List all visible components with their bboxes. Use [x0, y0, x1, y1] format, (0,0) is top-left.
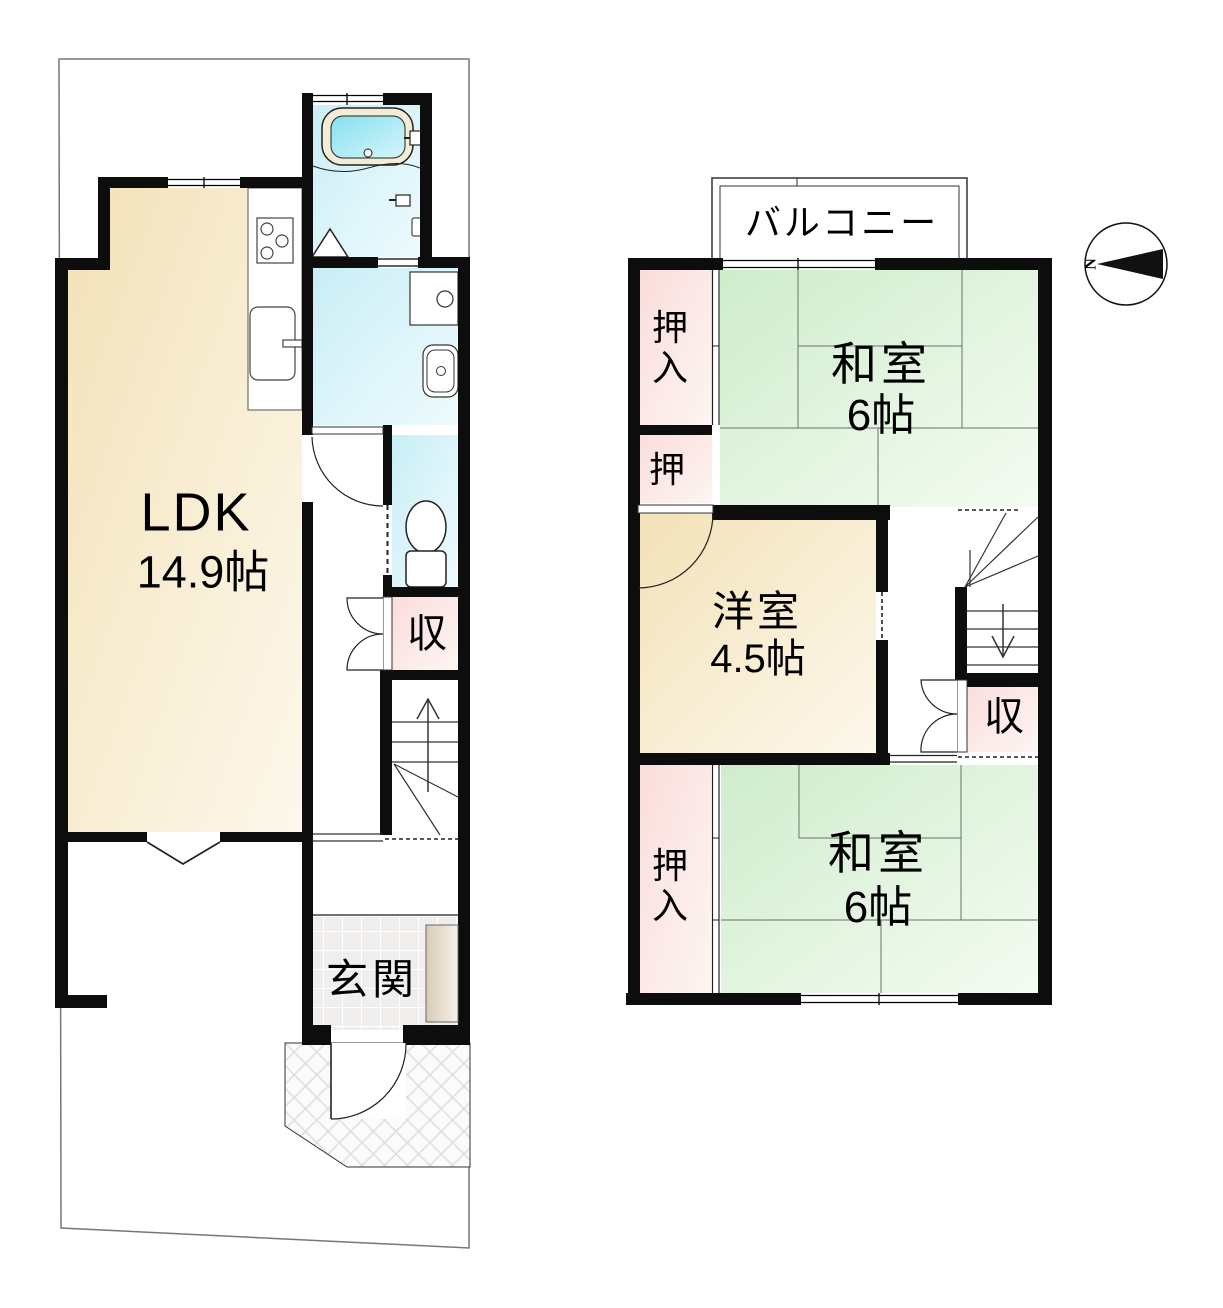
- closet-south-char2: 入: [652, 887, 688, 925]
- closet-north-char1: 押: [652, 309, 688, 347]
- ldk-door-icon: [147, 842, 220, 864]
- washitsu-north-label: 和室: [831, 340, 931, 388]
- entrance-door-icon: [331, 1043, 406, 1119]
- closet-north-char2: 入: [652, 349, 688, 387]
- storage1f-label: 収: [407, 613, 447, 655]
- ldk-label: LDK: [140, 485, 251, 542]
- washing-machine-icon: [410, 272, 458, 325]
- toilet-icon: [406, 501, 446, 587]
- wash-basin-icon: [423, 345, 458, 397]
- stairs-1f: [392, 699, 458, 835]
- washitsu-south-size-label: 6帖: [844, 885, 912, 931]
- entrance-label: 玄関: [326, 958, 418, 1002]
- bathtub-icon: [322, 108, 422, 165]
- closet-south-char1: 押: [652, 847, 688, 885]
- floorplan-drawing: [0, 0, 1223, 1308]
- washroom-door-icon: [312, 427, 383, 506]
- closet-north-label: 押 入: [652, 309, 688, 387]
- closet-south-label: 押 入: [652, 847, 688, 925]
- compass-north-label: N: [1084, 258, 1101, 270]
- floor2-plan: [626, 178, 1052, 1005]
- ldk-size-label: 14.9帖: [137, 548, 270, 595]
- youshitsu-label: 洋室: [712, 590, 802, 634]
- closet-mid-label: 押: [649, 451, 685, 489]
- storage2f-doors-icon: [921, 680, 967, 752]
- kitchen-sink-icon: [250, 307, 302, 380]
- washitsu-south-floor: [721, 765, 1038, 993]
- floorplan-canvas: LDK 14.9帖 収 玄関 バルコニー 和室 6帖 押 入 押 洋室 4.5帖…: [0, 0, 1223, 1308]
- stove-icon: [257, 218, 293, 263]
- balcony-label: バルコニー: [745, 204, 939, 242]
- stairs-2f: [965, 513, 1038, 665]
- storage1f-doors-icon: [347, 597, 392, 670]
- shoe-cabinet: [426, 925, 458, 1022]
- storage2f-label: 収: [984, 696, 1024, 738]
- washitsu-south-label: 和室: [828, 829, 928, 877]
- washitsu-north-size-label: 6帖: [847, 393, 915, 439]
- youshitsu-size-label: 4.5帖: [710, 638, 806, 680]
- floor1-thresholds: [313, 834, 458, 915]
